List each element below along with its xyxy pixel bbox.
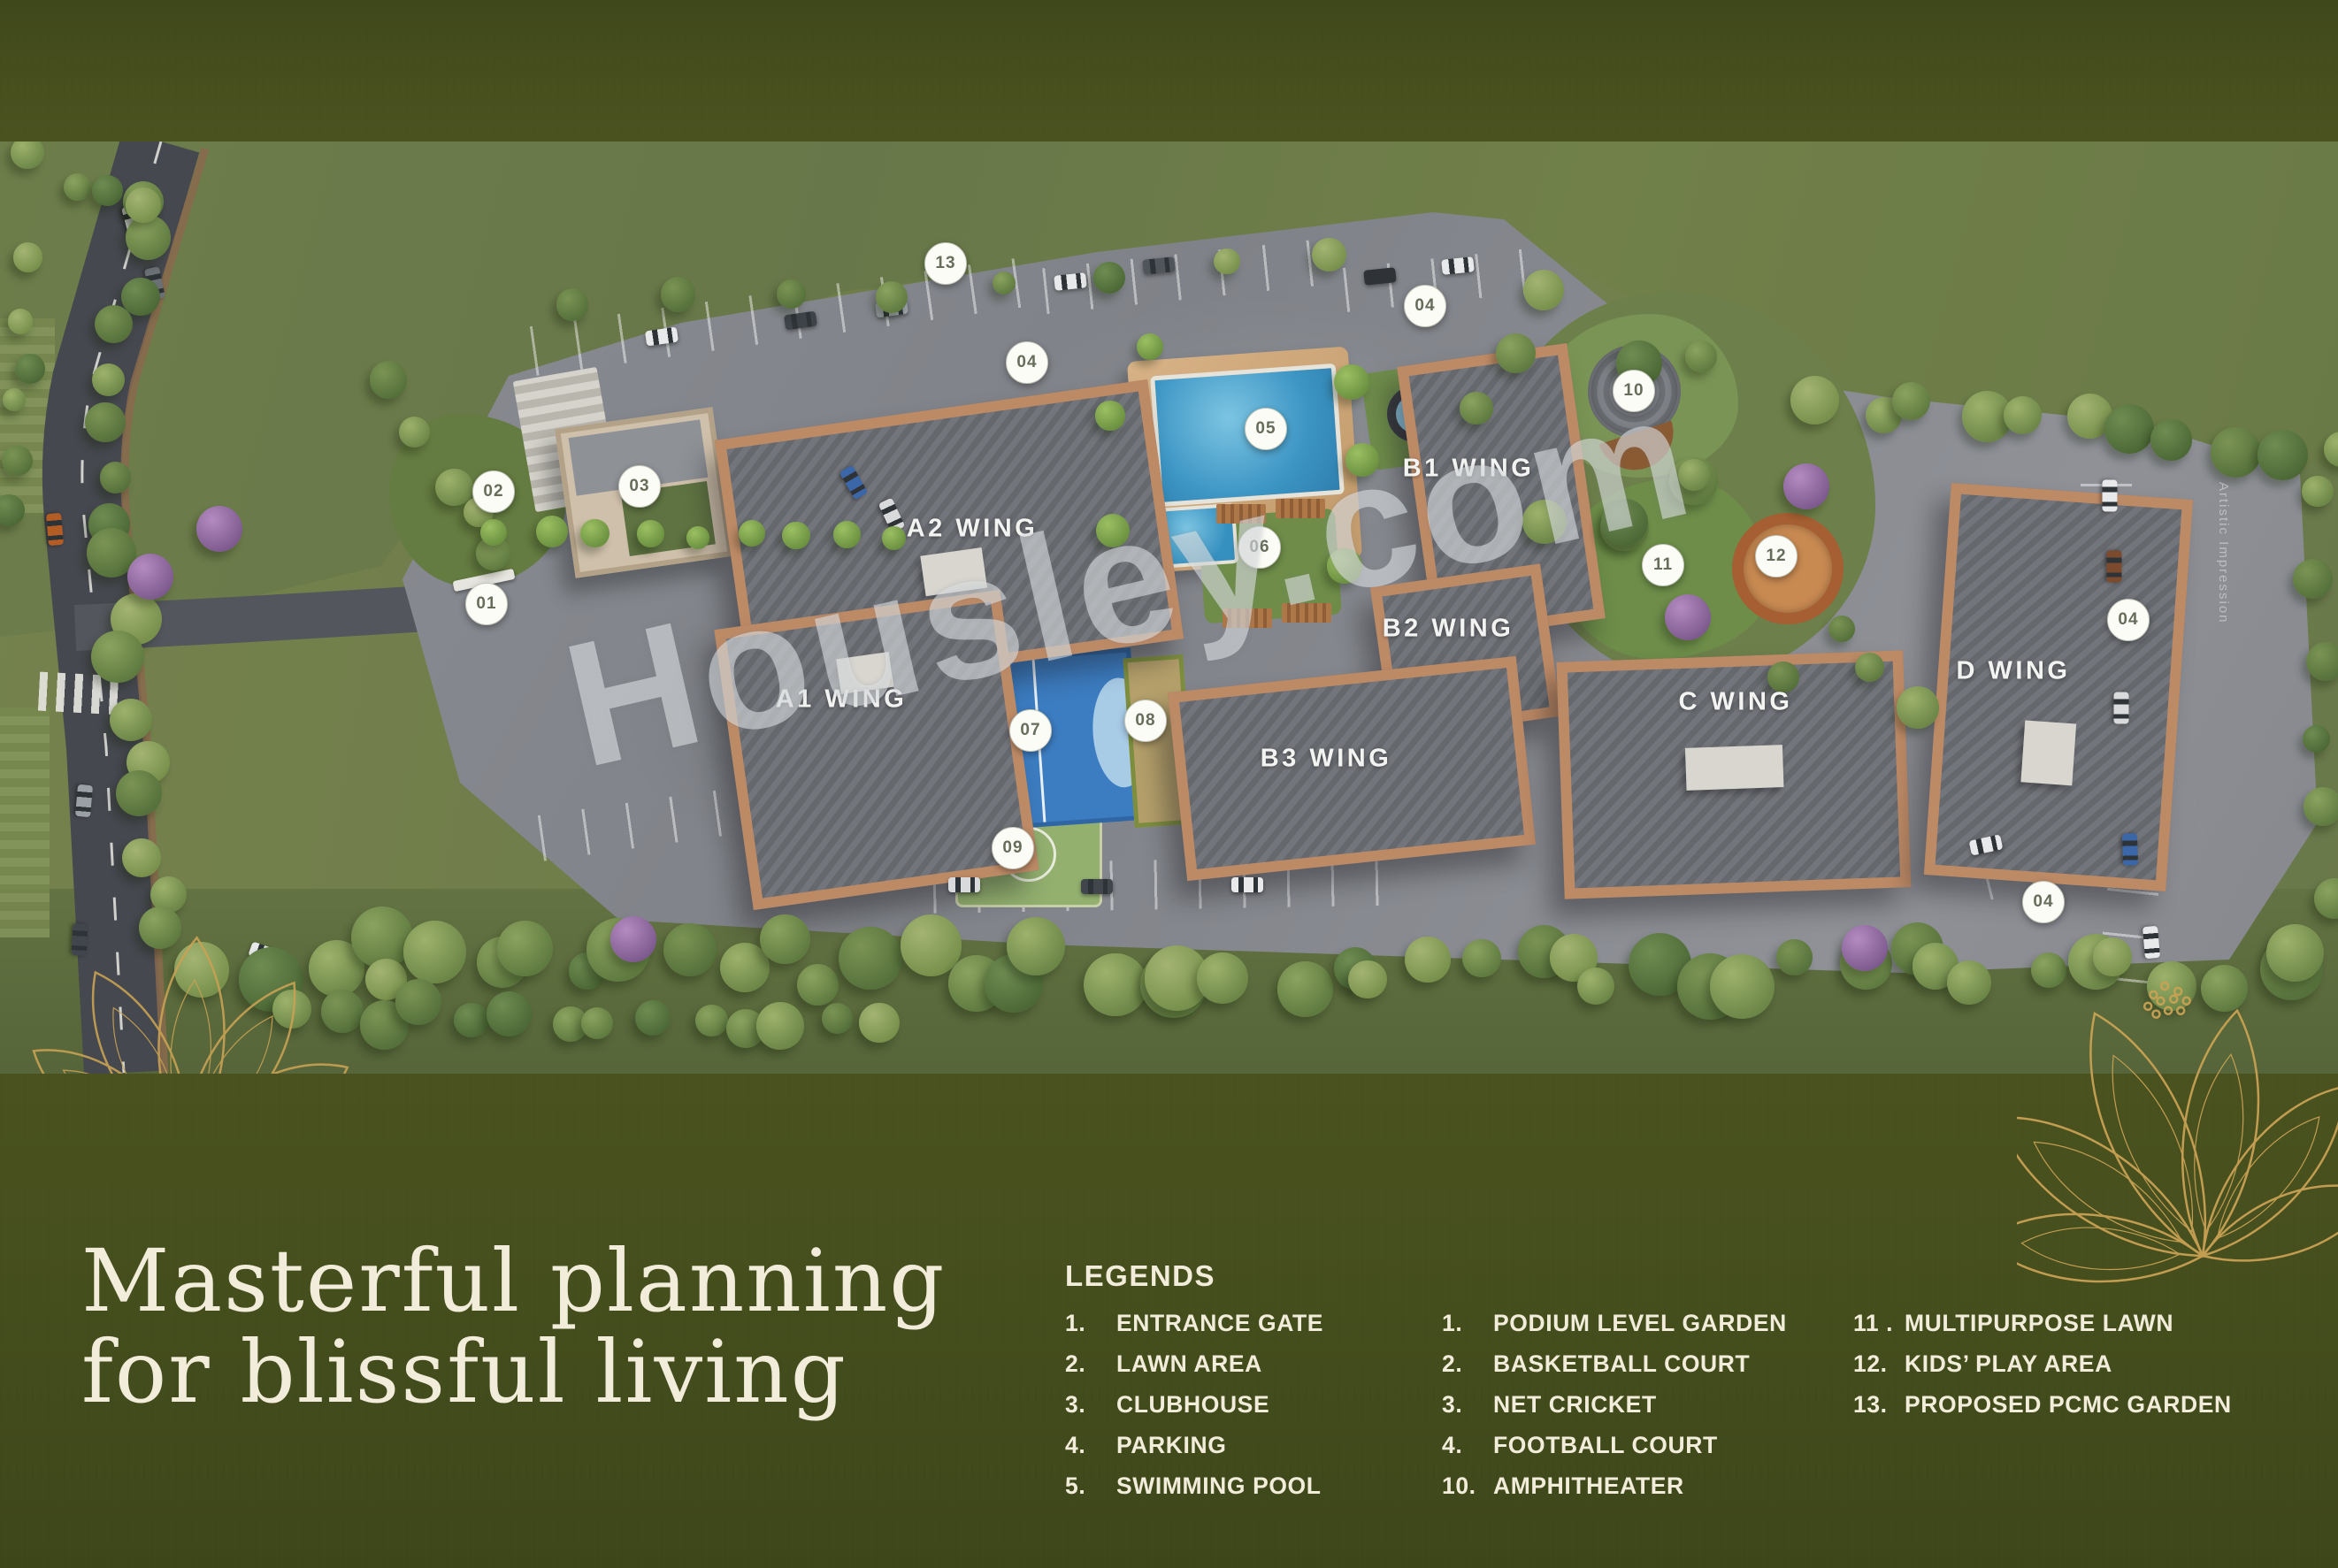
tree — [497, 921, 553, 976]
wing-label-b3-wing: B3 WING — [1261, 745, 1392, 774]
tree — [686, 526, 709, 548]
tree — [2, 446, 33, 477]
tree — [395, 979, 441, 1025]
tree — [2258, 430, 2308, 480]
tree — [663, 923, 717, 976]
top-olive-band — [0, 0, 2338, 142]
tree — [116, 770, 162, 816]
legend-number: 11 . — [1853, 1311, 1905, 1336]
legend-number: 5. — [1065, 1473, 1116, 1499]
map-marker-03: 03 — [618, 465, 661, 508]
tree — [695, 1005, 728, 1037]
tree — [839, 927, 902, 991]
legend-number: 3. — [1065, 1392, 1116, 1418]
tree — [100, 462, 131, 493]
building-d-wing — [1924, 483, 2193, 891]
tree — [1523, 270, 1564, 310]
tree — [859, 1003, 900, 1044]
tree — [272, 990, 311, 1029]
tree — [91, 631, 144, 684]
legend-number: 2. — [1442, 1351, 1493, 1377]
tree — [2104, 404, 2154, 454]
legend-number: 4. — [1065, 1433, 1116, 1458]
tree — [2147, 961, 2196, 1011]
legend-label: LAWN AREA — [1116, 1351, 1262, 1377]
tree — [1897, 686, 1939, 729]
tree — [1214, 249, 1240, 275]
tree — [1855, 653, 1884, 682]
car — [1231, 877, 1263, 892]
legend-label: CLUBHOUSE — [1116, 1392, 1269, 1418]
tree — [2004, 396, 2042, 434]
tree — [110, 699, 152, 741]
legend-label: SWIMMING POOL — [1116, 1473, 1322, 1499]
legend-item: 4.FOOTBALL COURT — [1442, 1433, 1858, 1458]
map-marker-04: 04 — [2107, 599, 2150, 641]
car — [2107, 551, 2122, 583]
rooftop-unit — [1685, 745, 1784, 791]
tree — [1776, 939, 1812, 975]
tree — [139, 906, 181, 949]
tree — [756, 1002, 804, 1050]
car — [2103, 480, 2118, 512]
tree — [1405, 937, 1451, 983]
tree — [127, 554, 173, 600]
tree — [1334, 364, 1369, 400]
legend-number: 12. — [1853, 1351, 1905, 1377]
tree — [196, 506, 242, 552]
tree — [1842, 925, 1888, 971]
legend-number: 10. — [1442, 1473, 1493, 1499]
legend-column-2: 1.PODIUM LEVEL GARDEN2.BASKETBALL COURT3… — [1442, 1311, 1858, 1499]
legend-label: PROPOSED PCMC GARDEN — [1905, 1392, 2232, 1418]
map-marker-12: 12 — [1755, 535, 1798, 577]
car — [75, 784, 93, 817]
legend-label: FOOTBALL COURT — [1493, 1433, 1718, 1458]
legend-number: 3. — [1442, 1392, 1493, 1418]
tree — [2211, 427, 2260, 477]
tree — [370, 361, 408, 399]
tree — [1665, 594, 1711, 640]
map-marker-08: 08 — [1124, 700, 1167, 742]
tree — [536, 516, 568, 547]
legend-column-3: 11 .MULTIPURPOSE LAWN12.KIDS’ PLAY AREA1… — [1853, 1311, 2331, 1418]
car — [1081, 879, 1113, 894]
tree — [637, 520, 663, 547]
tree — [2266, 924, 2324, 982]
legends-heading: LEGENDS — [1065, 1259, 1215, 1293]
legend-label: MULTIPURPOSE LAWN — [1905, 1311, 2173, 1336]
tree — [1947, 960, 1991, 1005]
legend-number: 13. — [1853, 1392, 1905, 1418]
artistic-impression-note: Artistic Impression — [2216, 482, 2231, 624]
tree — [610, 916, 656, 962]
tree — [2304, 787, 2338, 825]
car — [948, 877, 980, 892]
tree — [760, 914, 810, 965]
tree — [1790, 376, 1839, 425]
tree — [174, 942, 230, 998]
tree — [822, 1003, 853, 1034]
tree — [580, 519, 609, 547]
tree — [876, 281, 908, 313]
legend-label: ENTRANCE GATE — [1116, 1311, 1323, 1336]
legend-label: AMPHITHEATER — [1493, 1473, 1684, 1499]
tree — [454, 1003, 488, 1037]
masterplan-page: 01020304040404050607080910111213 A2 WING… — [0, 0, 2338, 1568]
tree — [1277, 961, 1332, 1016]
map-marker-04: 04 — [2022, 881, 2065, 923]
tree — [1084, 953, 1146, 1016]
tree — [13, 242, 43, 272]
tree — [2306, 642, 2338, 681]
car — [46, 513, 64, 546]
band-texture — [0, 0, 2338, 142]
tree — [1892, 382, 1930, 420]
legend-number: 4. — [1442, 1433, 1493, 1458]
tree — [661, 277, 696, 312]
legend-item: 3.NET CRICKET — [1442, 1392, 1858, 1418]
map-marker-01: 01 — [465, 583, 508, 625]
legend-item: 1.ENTRANCE GATE — [1065, 1311, 1445, 1336]
title-line-2: for blissful living — [81, 1327, 946, 1419]
tree — [1007, 917, 1064, 975]
legend-label: PARKING — [1116, 1433, 1226, 1458]
tree — [556, 288, 589, 321]
legend-item: 1.PODIUM LEVEL GARDEN — [1442, 1311, 1858, 1336]
tree — [85, 402, 125, 442]
legend-label: NET CRICKET — [1493, 1392, 1657, 1418]
legend-item: 12.KIDS’ PLAY AREA — [1853, 1351, 2331, 1377]
map-marker-04: 04 — [1006, 341, 1048, 384]
tree — [321, 990, 364, 1032]
tree — [15, 354, 45, 384]
legend-item: 13.PROPOSED PCMC GARDEN — [1853, 1392, 2331, 1418]
legend-label: KIDS’ PLAY AREA — [1905, 1351, 2112, 1377]
tree — [581, 1007, 613, 1039]
legend-item: 4.PARKING — [1065, 1433, 1445, 1458]
tree — [487, 991, 532, 1036]
car — [2143, 926, 2160, 959]
tree — [2093, 937, 2132, 976]
page-title: Masterful planning for blissful living — [81, 1236, 946, 1419]
tree — [399, 417, 430, 447]
wing-label-d-wing: D WING — [1957, 657, 2071, 686]
car — [2122, 833, 2138, 866]
legend-item: 2.LAWN AREA — [1065, 1351, 1445, 1377]
title-line-1: Masterful planning — [81, 1236, 946, 1327]
legend-column-1: 1.ENTRANCE GATE2.LAWN AREA3.CLUBHOUSE4.P… — [1065, 1311, 1445, 1499]
tree — [1197, 952, 1248, 1004]
map-marker-07: 07 — [1009, 709, 1052, 752]
wing-label-c-wing: C WING — [1679, 688, 1793, 717]
tree — [8, 309, 33, 333]
legend-item: 11 .MULTIPURPOSE LAWN — [1853, 1311, 2331, 1336]
car — [72, 923, 88, 956]
car — [2114, 692, 2129, 724]
legend-item: 3.CLUBHOUSE — [1065, 1392, 1445, 1418]
tree — [635, 1000, 671, 1036]
tree — [1312, 238, 1346, 272]
map-marker-13: 13 — [924, 242, 967, 285]
tree — [797, 964, 839, 1006]
map-marker-02: 02 — [472, 470, 515, 513]
tree — [1685, 340, 1717, 372]
rooftop-unit — [2020, 720, 2076, 785]
tree — [126, 187, 161, 223]
tree — [1496, 333, 1536, 373]
tree — [1783, 463, 1829, 509]
tree — [2150, 419, 2191, 460]
tree — [2201, 965, 2248, 1012]
tree — [2302, 476, 2333, 507]
tree — [1095, 401, 1124, 430]
legend-number: 1. — [1065, 1311, 1116, 1336]
tree — [1710, 954, 1775, 1019]
tree — [1462, 939, 1500, 977]
tree — [92, 175, 123, 206]
map-marker-04: 04 — [1404, 285, 1446, 327]
tree — [1348, 960, 1386, 998]
legend-item: 10.AMPHITHEATER — [1442, 1473, 1858, 1499]
legend-number: 2. — [1065, 1351, 1116, 1377]
legend-item: 2.BASKETBALL COURT — [1442, 1351, 1858, 1377]
legend-label: BASKETBALL COURT — [1493, 1351, 1750, 1377]
legend-number: 1. — [1442, 1311, 1493, 1336]
legend-label: PODIUM LEVEL GARDEN — [1493, 1311, 1787, 1336]
map-marker-09: 09 — [992, 827, 1034, 869]
tree — [2293, 559, 2333, 599]
tree — [403, 921, 466, 983]
legend-item: 5.SWIMMING POOL — [1065, 1473, 1445, 1499]
